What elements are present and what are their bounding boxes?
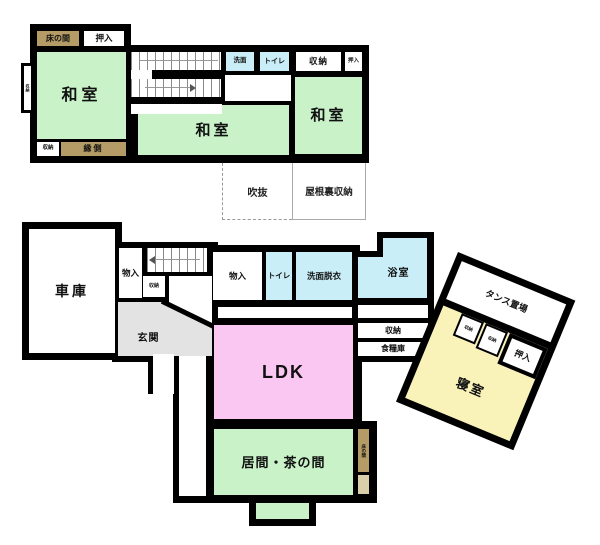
room-monoire: 物入 xyxy=(213,252,262,300)
room-storage-2f-bottom-left: 収納 xyxy=(37,142,59,156)
room-genkan-label: 玄関 xyxy=(122,325,175,352)
hall-2f xyxy=(225,75,291,101)
stairs-2f-lower-line xyxy=(145,87,190,88)
room-stair-storage: 収納 xyxy=(143,276,165,297)
room-senmen-2f: 洗面 xyxy=(226,52,254,71)
hall-1f-south xyxy=(179,356,206,496)
room-senmen-datsui: 洗面脱衣 xyxy=(296,252,352,300)
room-storage-2f-top: 収納 xyxy=(296,52,341,71)
stairs-2f-upper-treads xyxy=(131,52,221,70)
room-engawa: 縁側 xyxy=(61,142,126,156)
stairs-2f-divider xyxy=(152,70,221,79)
room-monoire-west: 物入 xyxy=(119,248,142,298)
room-oshiire-2f-right: 押入 xyxy=(345,52,362,71)
stairs-1f-treads xyxy=(147,248,207,272)
room-tokonoma-2f: 床の間 xyxy=(37,31,79,46)
room-shuno-strip: 収納 xyxy=(358,323,428,338)
void-yaneura-shuno: 屋根裏収納 xyxy=(292,163,366,220)
stairs-1f-line xyxy=(154,259,200,260)
hall-1f-front xyxy=(169,276,212,302)
hall-2f-landing xyxy=(131,104,222,114)
stairs-2f-upper-line xyxy=(140,60,218,61)
room-side-closet-2f: 収納 xyxy=(24,66,31,110)
room-bathroom-label: 浴室 xyxy=(370,250,427,298)
bay-window xyxy=(256,503,309,519)
room-tokonoma-1f: 床の間 xyxy=(358,429,369,472)
room-ldk: LDK xyxy=(214,325,353,419)
room-garage: 車庫 xyxy=(29,229,115,353)
room-toilet-2f: トイレ xyxy=(260,52,289,71)
room-toilet-1f: トイレ xyxy=(266,252,292,300)
hall-1f-east xyxy=(358,305,428,318)
room-ima-chanoma: 居間・茶の間 xyxy=(214,429,353,495)
room-oshiire-2f-left: 押入 xyxy=(84,31,124,46)
void-fukinuke: 吹抜 xyxy=(222,163,292,220)
alcove-strip xyxy=(358,475,369,494)
room-washitsu-right: 和室 xyxy=(295,77,362,154)
room-washitsu-left: 和室 xyxy=(37,52,126,139)
stairs-2f-lower-treads xyxy=(131,79,221,97)
step-1f xyxy=(153,354,174,394)
floor-plan-canvas: 床の間 押入 和室 収納 収納 縁側 洗面 トイレ 収納 押入 和室 和室 吹抜… xyxy=(0,0,600,545)
stairs-1f-direction-arrow xyxy=(149,256,155,264)
stairs-2f-direction-arrow xyxy=(190,84,196,92)
